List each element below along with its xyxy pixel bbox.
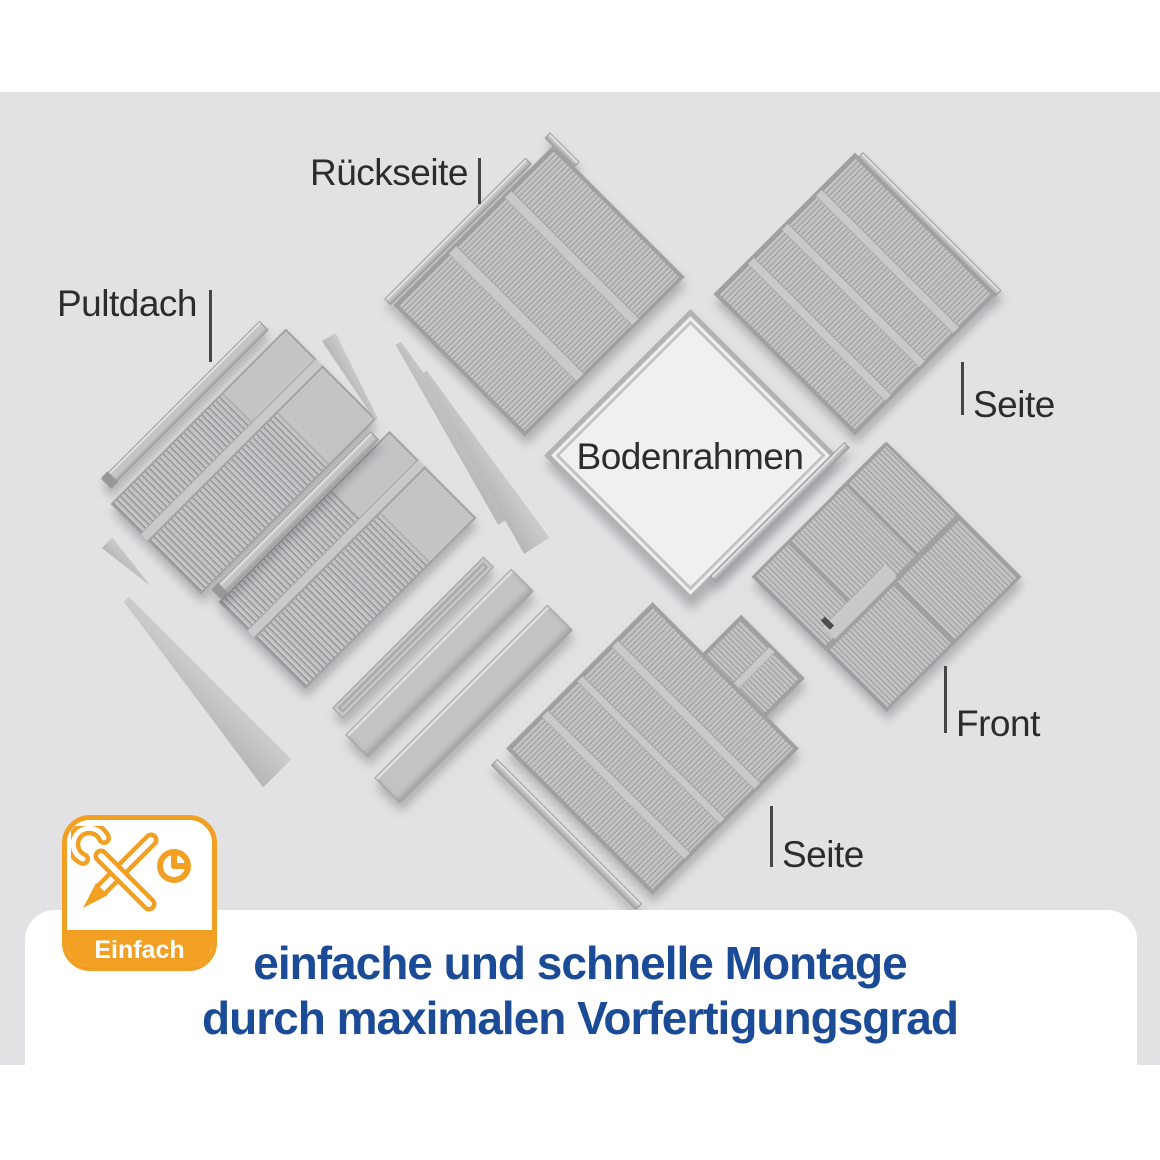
label-pultdach: Pultdach	[57, 283, 197, 325]
leader-line-front	[944, 666, 947, 733]
easy-badge-label: Einfach	[62, 930, 217, 971]
panel-divider-rail	[504, 190, 640, 326]
panel-divider-rail	[782, 223, 926, 367]
label-seite-bottom: Seite	[782, 834, 864, 876]
easy-badge: Einfach	[62, 815, 217, 971]
label-front: Front	[956, 703, 1040, 745]
panel-divider-rail	[577, 675, 726, 824]
label-bodenrahmen: Bodenrahmen	[577, 436, 804, 478]
caption-line-2: durch maximalen Vorfertigungsgrad	[0, 991, 1160, 1046]
label-rueckseite: Rückseite	[310, 152, 468, 194]
leader-line-seite-bottom	[770, 806, 773, 867]
leader-line-pultdach	[209, 290, 212, 362]
parts-diagram: Pultdach Rückseite Seite Bodenrahmen Fro…	[0, 0, 1160, 1160]
panel-divider-rail	[449, 246, 585, 382]
leader-line-seite-top	[961, 362, 964, 415]
label-seite-top: Seite	[973, 384, 1055, 426]
tools-and-clock-icon	[71, 826, 199, 922]
leader-line-rueckseite	[478, 158, 481, 204]
